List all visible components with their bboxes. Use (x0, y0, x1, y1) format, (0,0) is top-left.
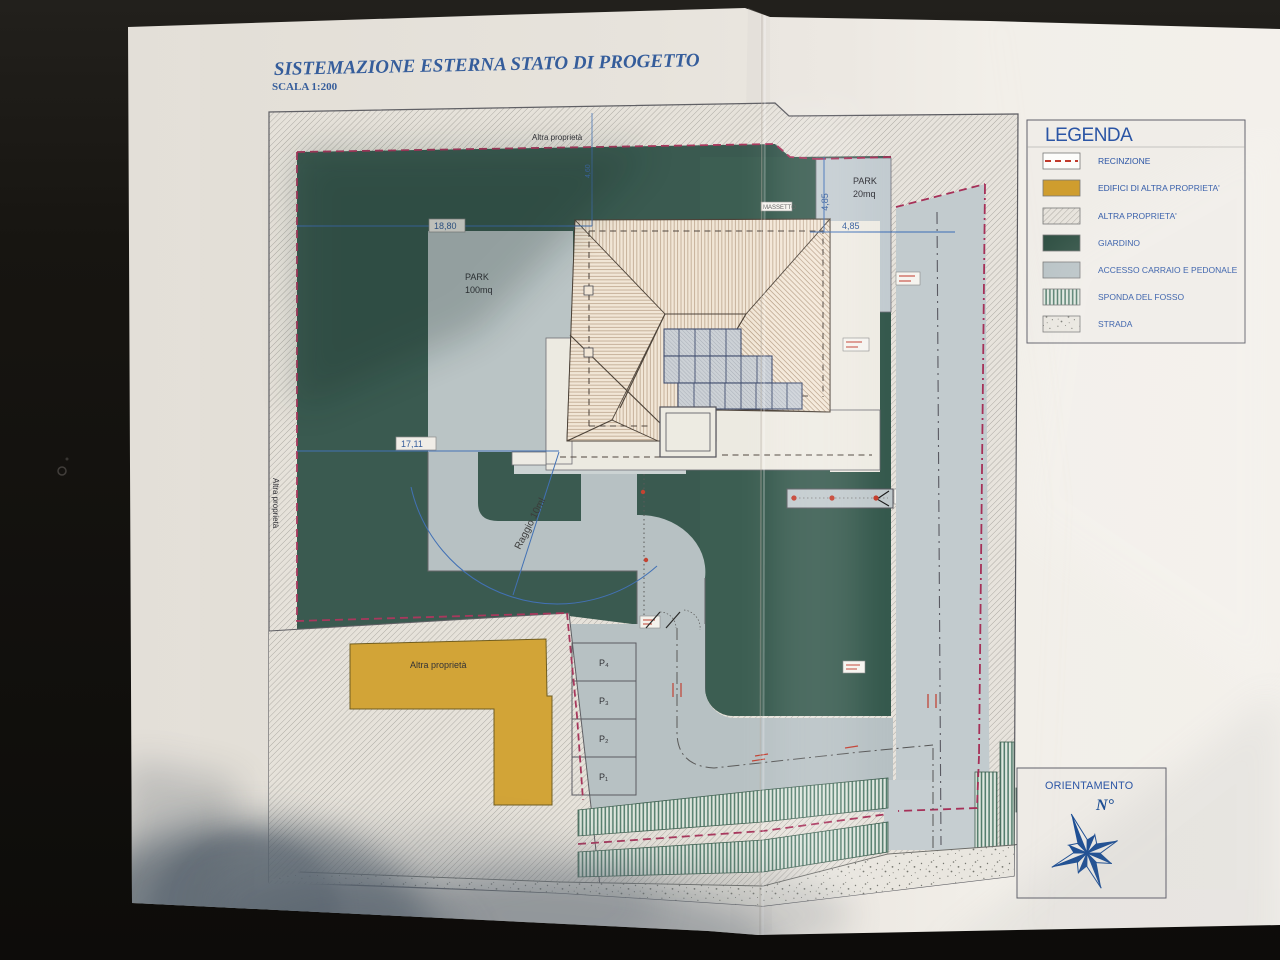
svg-text:N°: N° (1095, 797, 1115, 814)
svg-text:LEGENDA: LEGENDA (1045, 125, 1133, 146)
svg-text:ORIENTAMENTO: ORIENTAMENTO (1045, 780, 1133, 792)
svg-text:RECINZIONE: RECINZIONE (1098, 156, 1151, 166)
